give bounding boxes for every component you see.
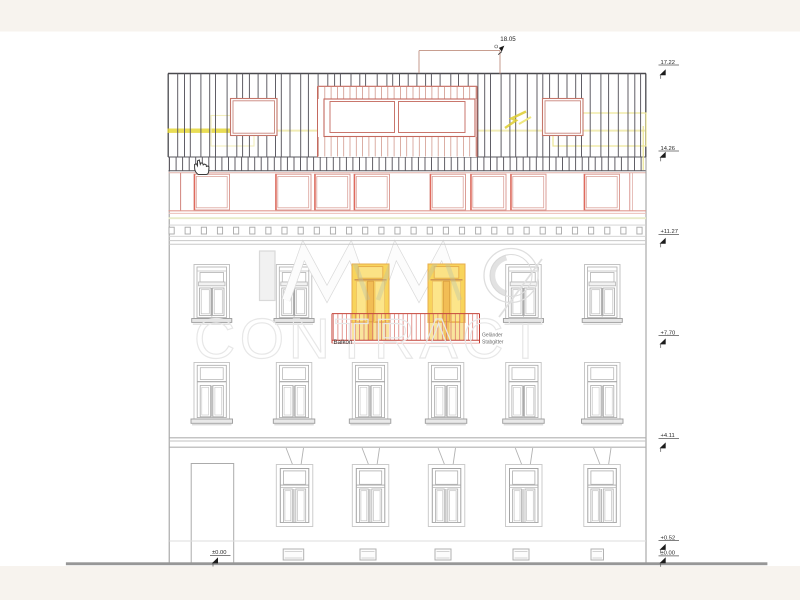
- svg-text:Stabgitter: Stabgitter: [482, 339, 504, 345]
- svg-text:Balkon: Balkon: [334, 339, 353, 346]
- svg-text:Geländer: Geländer: [482, 333, 503, 339]
- svg-text:18.05: 18.05: [500, 36, 516, 43]
